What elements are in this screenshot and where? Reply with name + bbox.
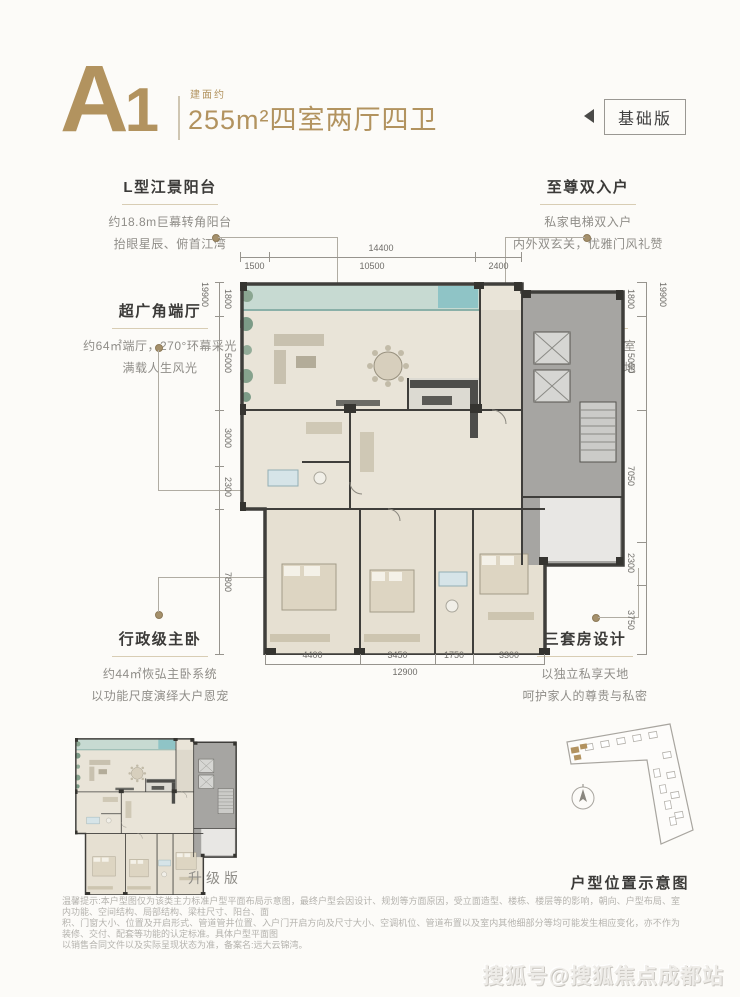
dimension-total: 12900 xyxy=(265,667,545,677)
dimension-segment: 2400 xyxy=(475,261,522,271)
dimension-tick xyxy=(637,316,646,317)
dimension-line xyxy=(265,664,545,665)
dimension-segment: 5000 xyxy=(223,316,233,410)
dimension-right: 1800 5000 7050 2300 3750 19900 xyxy=(620,282,676,655)
callout-line-segment xyxy=(158,350,159,490)
callout-dot xyxy=(212,234,220,242)
dimension-segment: 2300 xyxy=(223,466,233,509)
dimension-segment: 3000 xyxy=(223,410,233,466)
dimension-total: 19900 xyxy=(658,282,668,655)
dimension-segment: 1500 xyxy=(240,261,269,271)
dimension-segment: 3750 xyxy=(626,585,636,655)
disclaimer-line: 积、门窗大小、位置及开启形式、管道管井位置、入户门开启方向及尺寸大小、空调机位、… xyxy=(62,918,680,940)
dimension-segment: 1800 xyxy=(223,282,233,316)
callout-title: L型江景阳台 xyxy=(70,176,270,197)
callout-dot xyxy=(155,611,163,619)
dimension-tick xyxy=(637,585,646,586)
disclaimer-line: 温馨提示:本户型图仅为该类主力标准户型平面布局示意图，最终户型会因设计、规划等方… xyxy=(62,896,680,918)
dimension-tick xyxy=(473,654,474,664)
callout-line-segment xyxy=(218,237,338,238)
dimension-segment: 5000 xyxy=(626,316,636,410)
callout-rule xyxy=(537,656,633,657)
callout-rule xyxy=(122,204,218,205)
mini-plan-label: 升级版 xyxy=(188,868,242,888)
callout-dot xyxy=(155,344,163,352)
callout-rule xyxy=(112,328,208,329)
dimension-tick xyxy=(544,654,545,664)
site-diagram-label: 户型位置示意图 xyxy=(560,872,700,893)
dimension-segment: 2300 xyxy=(626,542,636,585)
callout-rule xyxy=(540,204,636,205)
dimension-tick xyxy=(637,282,646,283)
plan-code: A1 xyxy=(60,52,159,147)
sohu-watermark: 搜狐号@搜狐焦点成都站 xyxy=(483,960,724,990)
dimension-line xyxy=(219,282,220,655)
dimension-tick xyxy=(435,654,436,664)
plan-code-number: 1 xyxy=(125,76,159,145)
dimension-top: 14400 1500 10500 2400 xyxy=(240,243,522,279)
dimension-tick xyxy=(637,542,646,543)
version-badge: 基础版 xyxy=(604,99,686,135)
callout-line: 私家电梯双入户 xyxy=(488,212,688,234)
callout-rule xyxy=(112,656,208,657)
dimension-segment: 10500 xyxy=(269,261,475,271)
site-location-diagram xyxy=(555,712,705,867)
dimension-segment: 3450 xyxy=(360,650,435,660)
callout-dot xyxy=(583,234,591,242)
floorplan-poster: A1 建面约 255m²四室两厅四卫 基础版 L型江景阳台 约18.8m巨幕转角… xyxy=(0,0,740,997)
callout-line: 约44㎡恢弘主卧系统 xyxy=(55,664,265,686)
dimension-tick xyxy=(637,410,646,411)
disclaimer: 温馨提示:本户型图仅为该类主力标准户型平面布局示意图，最终户型会因设计、规划等方… xyxy=(62,896,680,951)
callout-title: 至尊双入户 xyxy=(488,176,688,197)
dimension-tick xyxy=(360,654,361,664)
dimension-total: 14400 xyxy=(240,243,522,253)
floor-plan xyxy=(240,282,625,655)
dimension-tick xyxy=(637,654,646,655)
dimension-line xyxy=(646,282,647,655)
plan-code-letter: A xyxy=(60,46,125,152)
area-spec: 255m²四室两厅四卫 xyxy=(188,98,438,137)
dimension-tick xyxy=(265,654,266,664)
compass-icon xyxy=(579,789,587,802)
dimension-left: 19900 1800 5000 3000 2300 7800 xyxy=(196,282,240,655)
dimension-segment: 3300 xyxy=(473,650,545,660)
dimension-segment: 7050 xyxy=(626,410,636,542)
dimension-segment: 7800 xyxy=(223,509,233,655)
dimension-segment: 1750 xyxy=(435,650,473,660)
disclaimer-line: 以销售合同文件以及实际呈现状态为准，备案名:远大云锦湾。 xyxy=(62,940,680,951)
dimension-segment: 1800 xyxy=(626,282,636,316)
header-divider xyxy=(178,96,180,140)
callout-line-segment xyxy=(505,237,585,238)
callout-line: 以功能尺度演绎大户恩宠 xyxy=(55,686,265,708)
dimension-line xyxy=(240,257,522,258)
dimension-total: 19900 xyxy=(200,282,210,655)
callout-line: 约18.8m巨幕转角阳台 xyxy=(70,212,270,234)
dimension-segment: 4400 xyxy=(265,650,360,660)
dimension-bottom: 4400 3450 1750 3300 12900 xyxy=(265,650,545,690)
arrow-left-icon xyxy=(584,109,594,123)
callout-line-segment xyxy=(158,577,159,612)
